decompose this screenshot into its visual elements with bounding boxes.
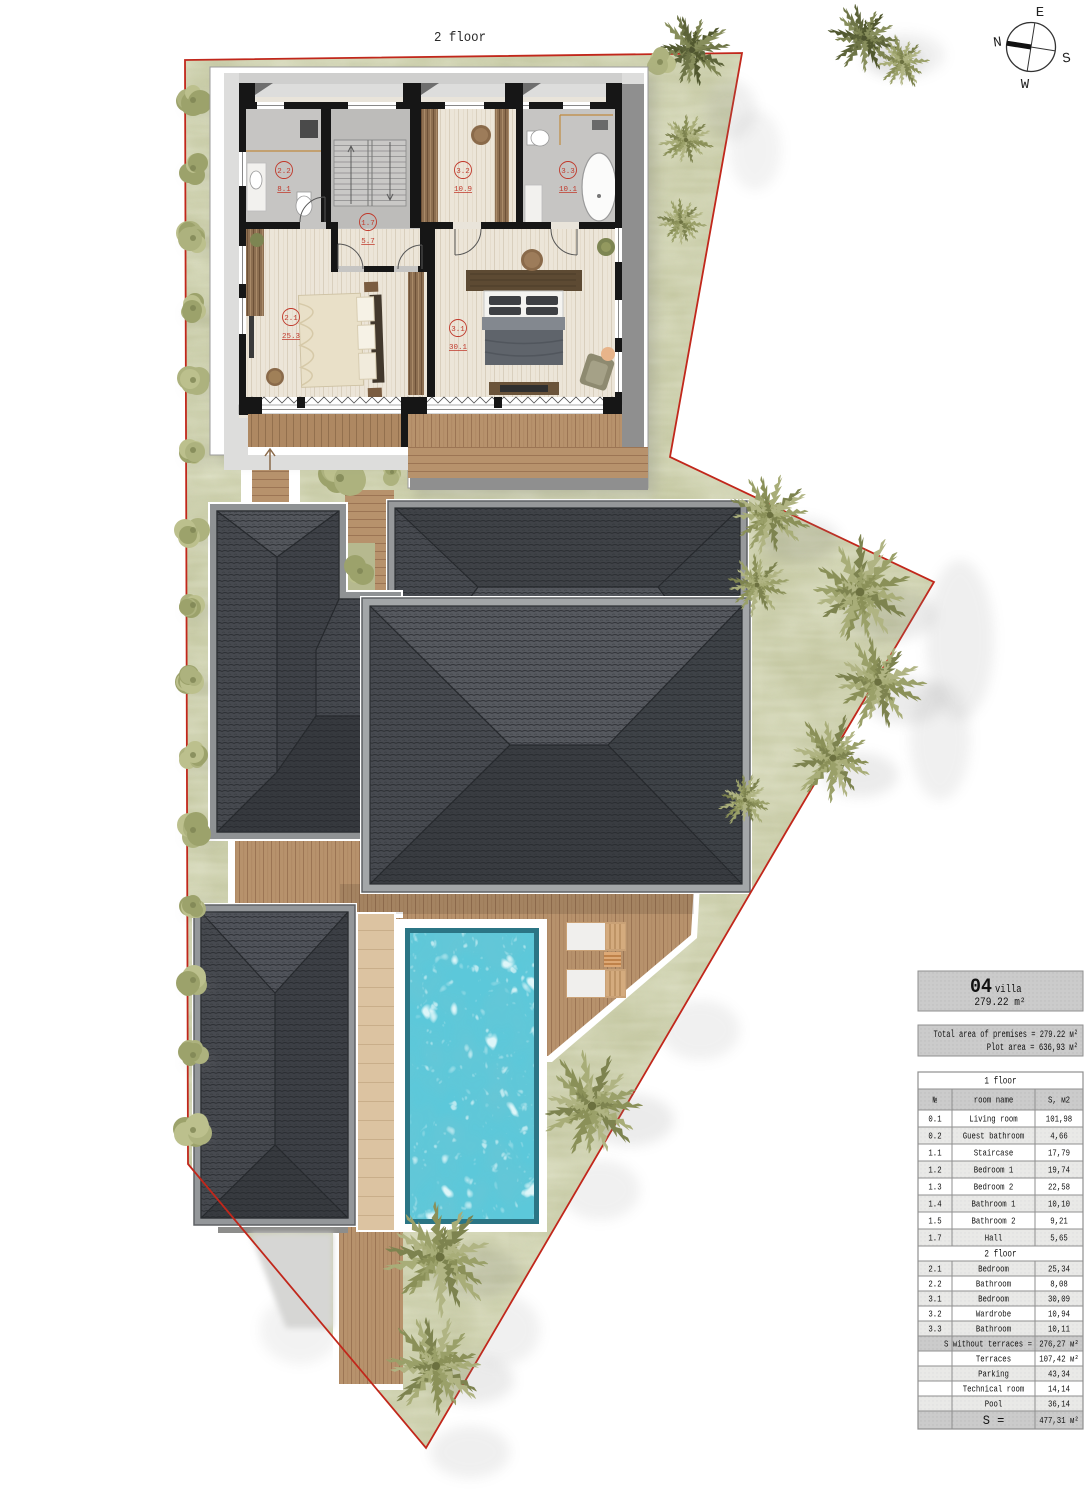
svg-text:9,21: 9,21: [1050, 1216, 1068, 1227]
svg-text:S without terraces =: S without terraces =: [944, 1339, 1032, 1350]
svg-text:room name: room name: [974, 1095, 1014, 1106]
svg-text:8.1: 8.1: [277, 186, 291, 194]
svg-text:Terraces: Terraces: [976, 1354, 1011, 1365]
svg-text:3.1: 3.1: [928, 1294, 941, 1305]
svg-text:Bedroom 1: Bedroom 1: [974, 1165, 1014, 1176]
svg-text:04: 04: [970, 976, 992, 999]
svg-text:10,10: 10,10: [1048, 1199, 1070, 1210]
svg-text:25.3: 25.3: [282, 333, 301, 341]
svg-text:19,74: 19,74: [1048, 1165, 1070, 1176]
svg-text:W: W: [1021, 77, 1030, 93]
svg-text:Living room: Living room: [969, 1114, 1018, 1125]
svg-text:5,65: 5,65: [1050, 1233, 1068, 1244]
svg-text:4,66: 4,66: [1050, 1131, 1068, 1142]
svg-text:10.9: 10.9: [454, 186, 472, 194]
svg-text:3.3: 3.3: [928, 1324, 941, 1335]
svg-text:1.3: 1.3: [928, 1182, 941, 1193]
svg-text:10,94: 10,94: [1048, 1309, 1070, 1320]
svg-text:3.2: 3.2: [456, 168, 470, 176]
svg-text:2 floor: 2 floor: [434, 31, 486, 46]
svg-text:Plot area = 636,93 м²: Plot area = 636,93 м²: [987, 1042, 1078, 1054]
svg-text:2.2: 2.2: [277, 168, 291, 176]
svg-text:1.2: 1.2: [928, 1165, 941, 1176]
svg-text:2.1: 2.1: [928, 1264, 941, 1275]
svg-text:25,34: 25,34: [1048, 1264, 1070, 1275]
svg-text:1.4: 1.4: [928, 1199, 941, 1210]
svg-text:0.1: 0.1: [928, 1114, 941, 1125]
svg-text:477,31 м²: 477,31 м²: [1039, 1415, 1079, 1426]
svg-text:Bathroom 2: Bathroom 2: [972, 1216, 1016, 1227]
svg-text:Total area of premises = 279.2: Total area of premises = 279.22 м²: [934, 1029, 1079, 1041]
svg-text:E: E: [1036, 5, 1044, 21]
svg-text:10.1: 10.1: [559, 186, 578, 194]
svg-text:0.2: 0.2: [928, 1131, 941, 1142]
svg-text:Staircase: Staircase: [974, 1148, 1014, 1159]
svg-text:Bedroom 2: Bedroom 2: [974, 1182, 1014, 1193]
svg-text:2 floor: 2 floor: [984, 1249, 1016, 1261]
svg-text:8,08: 8,08: [1050, 1279, 1068, 1290]
svg-text:3.1: 3.1: [451, 326, 465, 334]
svg-text:Bedroom: Bedroom: [978, 1264, 1009, 1275]
svg-text:Parking: Parking: [978, 1369, 1009, 1380]
svg-text:36,14: 36,14: [1048, 1399, 1070, 1410]
svg-text:17,79: 17,79: [1048, 1148, 1070, 1159]
svg-text:107,42 м²: 107,42 м²: [1039, 1354, 1079, 1365]
svg-text:43,34: 43,34: [1048, 1369, 1070, 1380]
svg-text:22,58: 22,58: [1048, 1182, 1070, 1193]
svg-text:10,11: 10,11: [1048, 1324, 1070, 1335]
svg-text:101,98: 101,98: [1046, 1114, 1073, 1125]
svg-text:1.7: 1.7: [928, 1233, 941, 1244]
svg-text:№: №: [933, 1096, 938, 1106]
svg-text:14,14: 14,14: [1048, 1384, 1070, 1395]
svg-text:Bedroom: Bedroom: [978, 1294, 1009, 1305]
svg-text:3.2: 3.2: [928, 1309, 941, 1320]
svg-text:Bathroom: Bathroom: [976, 1324, 1011, 1335]
svg-text:Hall: Hall: [985, 1233, 1003, 1244]
svg-text:2.2: 2.2: [928, 1279, 941, 1290]
svg-text:3.3: 3.3: [561, 168, 575, 176]
svg-text:Technical room: Technical room: [963, 1384, 1025, 1395]
svg-text:5.7: 5.7: [361, 238, 375, 246]
svg-text:1 floor: 1 floor: [984, 1076, 1016, 1088]
svg-text:Pool: Pool: [985, 1399, 1003, 1410]
svg-text:30,09: 30,09: [1048, 1294, 1070, 1305]
svg-text:276,27 м²: 276,27 м²: [1039, 1339, 1079, 1350]
svg-text:S, м2: S, м2: [1048, 1095, 1070, 1106]
svg-text:Wardrobe: Wardrobe: [976, 1309, 1011, 1320]
svg-text:30.1: 30.1: [449, 344, 468, 352]
svg-text:Guest bathroom: Guest bathroom: [963, 1131, 1025, 1142]
svg-text:villa: villa: [995, 984, 1022, 996]
svg-text:1.5: 1.5: [928, 1216, 941, 1227]
svg-text:S =: S =: [983, 1413, 1005, 1428]
svg-text:1.7: 1.7: [361, 220, 375, 228]
svg-text:279.22 m²: 279.22 m²: [974, 997, 1025, 1009]
svg-text:Bathroom: Bathroom: [976, 1279, 1011, 1290]
svg-text:1.1: 1.1: [928, 1148, 941, 1159]
svg-text:Bathroom 1: Bathroom 1: [972, 1199, 1016, 1210]
svg-text:2.1: 2.1: [284, 315, 298, 323]
